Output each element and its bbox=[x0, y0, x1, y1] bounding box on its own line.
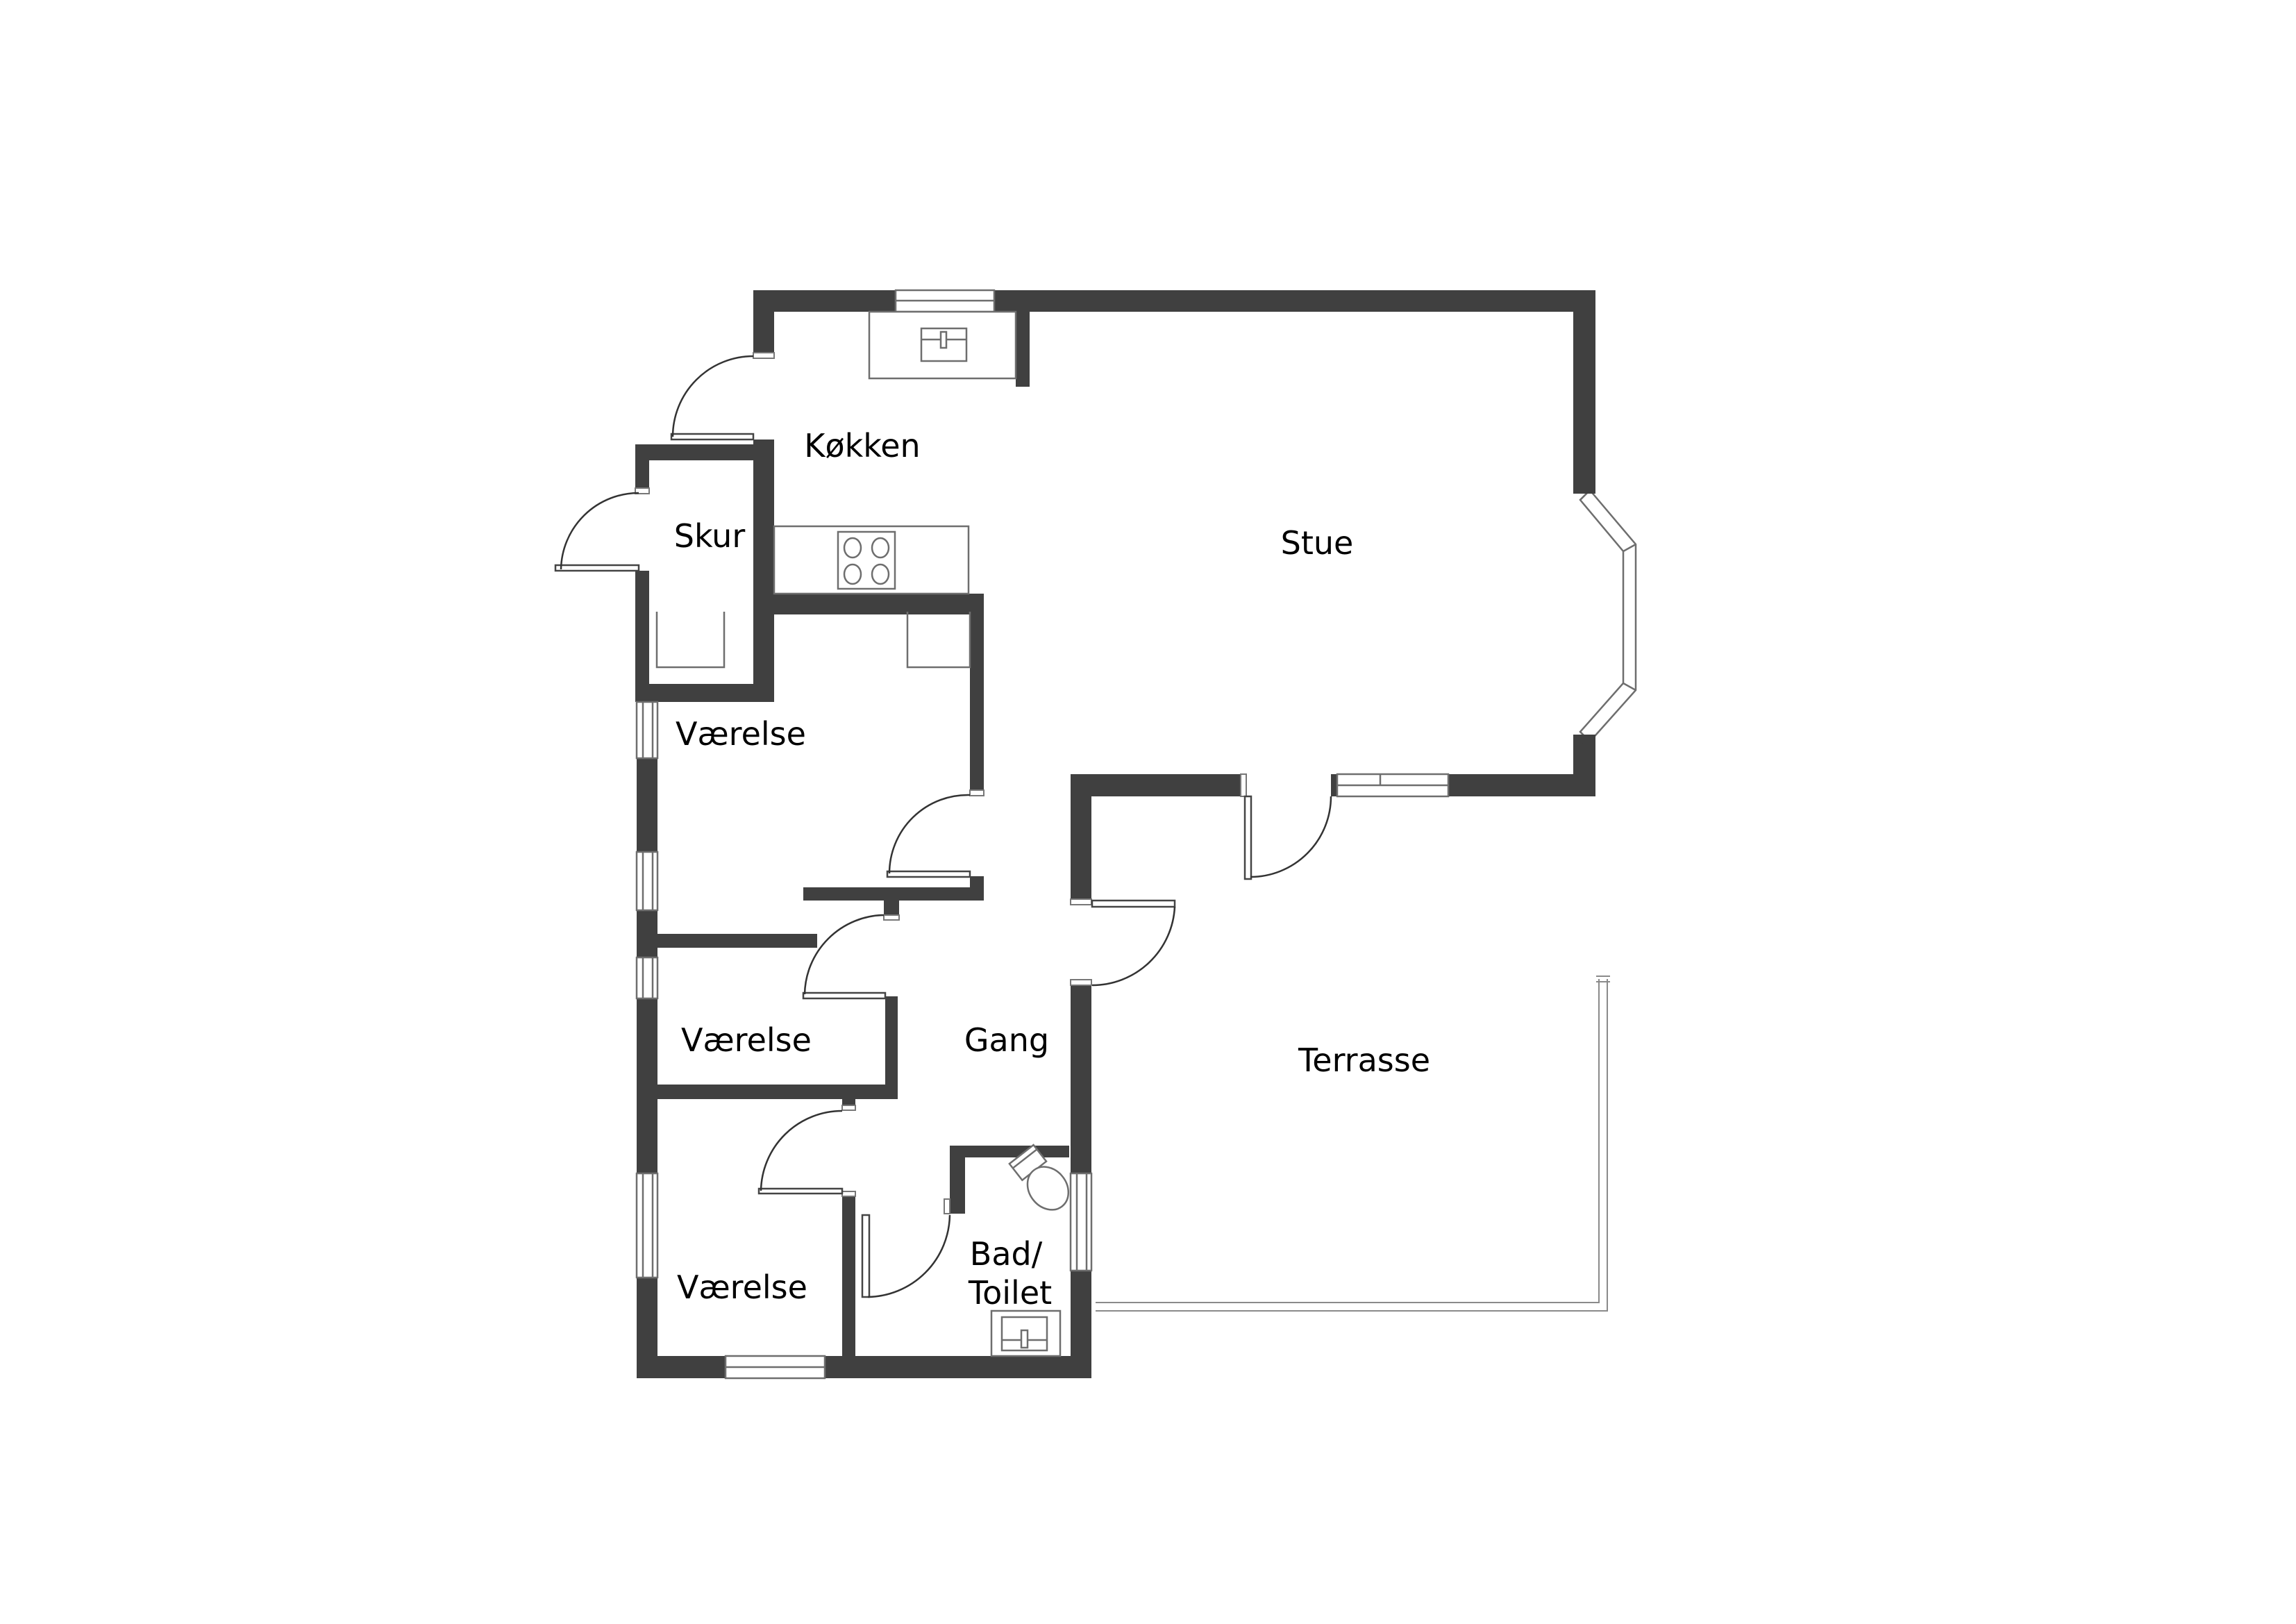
skur-door bbox=[555, 488, 649, 571]
closet-icon-1 bbox=[657, 612, 724, 667]
label-bad: Bad/ bbox=[970, 1235, 1043, 1273]
window-west-4 bbox=[637, 1173, 657, 1278]
window-north bbox=[896, 290, 994, 312]
window-west-2 bbox=[637, 852, 657, 910]
vaerelse2-door bbox=[803, 915, 899, 998]
vaerelse1-door bbox=[887, 790, 984, 877]
fixtures bbox=[657, 312, 1077, 1356]
terrace-outline bbox=[1096, 976, 1610, 1311]
window-west-3 bbox=[637, 957, 657, 998]
walls bbox=[635, 290, 1595, 1378]
gang-terrace-door bbox=[1071, 899, 1175, 985]
bay-window bbox=[1573, 473, 1636, 755]
label-terrasse: Terrasse bbox=[1298, 1041, 1430, 1079]
stove-icon bbox=[838, 532, 895, 589]
vaerelse3-door bbox=[759, 1105, 855, 1196]
label-vaerelse-1: Værelse bbox=[676, 715, 806, 753]
sliding-door-stue bbox=[1337, 774, 1448, 796]
label-koekken: Køkken bbox=[804, 427, 920, 464]
entrance-door bbox=[671, 353, 774, 440]
window-west-1 bbox=[637, 702, 657, 758]
floor-plan: Køkken Skur Stue Værelse Værelse Gang Væ… bbox=[0, 0, 2296, 1624]
kitchen-sink-icon bbox=[921, 328, 966, 361]
doors bbox=[555, 353, 1331, 1297]
label-toilet: Toilet bbox=[968, 1274, 1052, 1312]
bad-door bbox=[862, 1199, 950, 1297]
stue-terrace-door bbox=[1241, 774, 1331, 879]
label-stue: Stue bbox=[1281, 524, 1354, 562]
kitchen-counter-north bbox=[869, 312, 1016, 378]
window-south bbox=[726, 1356, 825, 1378]
label-vaerelse-3: Værelse bbox=[677, 1269, 807, 1306]
label-gang: Gang bbox=[964, 1021, 1049, 1059]
label-skur: Skur bbox=[674, 517, 746, 555]
label-vaerelse-2: Værelse bbox=[681, 1021, 812, 1059]
kitchen-counter-west bbox=[774, 526, 969, 594]
closet-icon-2 bbox=[907, 612, 970, 667]
window-east-bath bbox=[1071, 1173, 1091, 1271]
windows bbox=[637, 290, 1636, 1378]
bathroom-sink-icon bbox=[991, 1311, 1060, 1356]
